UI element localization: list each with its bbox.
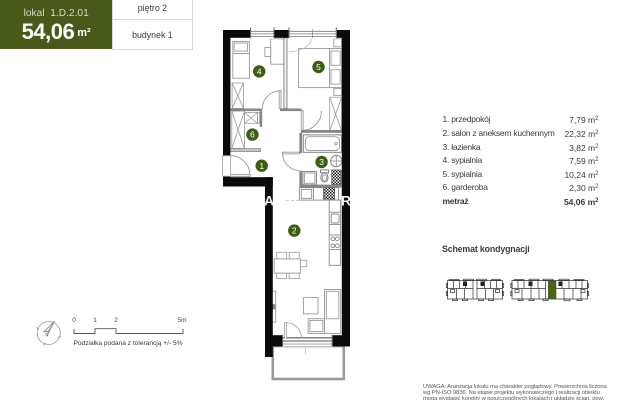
svg-text:N: N	[45, 333, 49, 339]
svg-text:1: 1	[259, 161, 264, 171]
svg-text:R: R	[341, 192, 351, 208]
svg-text:3: 3	[319, 157, 324, 167]
svg-text:4: 4	[257, 67, 262, 77]
svg-text:2: 2	[292, 226, 297, 236]
svg-text:5: 5	[316, 62, 321, 72]
svg-text:A: A	[264, 192, 274, 208]
svg-text:6: 6	[250, 130, 255, 140]
